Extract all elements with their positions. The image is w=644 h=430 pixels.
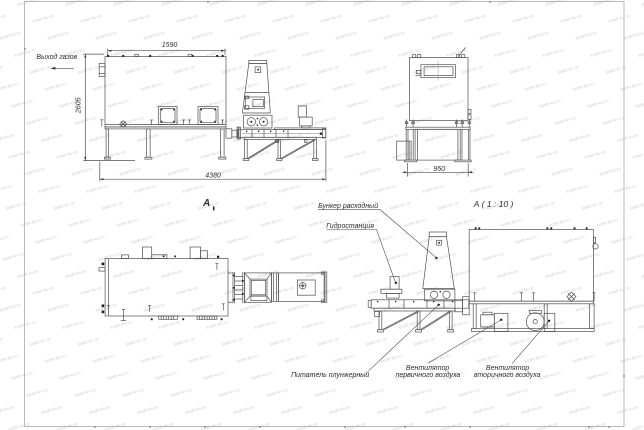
svg-text:kotel-kv.ru: kotel-kv.ru (233, 404, 256, 416)
svg-text:kotel-kv.ru: kotel-kv.ru (41, 404, 64, 416)
svg-text:kotel-kv.ru: kotel-kv.ru (245, 200, 268, 212)
svg-text:kotel-kv.ru: kotel-kv.ru (518, 183, 541, 195)
svg-text:kotel-kv.ru: kotel-kv.ru (146, 251, 169, 263)
svg-text:kotel-kv.ru: kotel-kv.ru (179, 234, 202, 246)
svg-text:kotel-kv.ru: kotel-kv.ru (569, 132, 592, 144)
svg-text:kotel-kv.ru: kotel-kv.ru (632, 149, 644, 161)
svg-text:kotel-kv.ru: kotel-kv.ru (335, 302, 358, 314)
svg-text:kotel-kv.ru: kotel-kv.ru (188, 353, 211, 365)
svg-text:kotel-kv.ru: kotel-kv.ru (470, 183, 493, 195)
svg-text:kotel-kv.ru: kotel-kv.ru (77, 64, 100, 76)
svg-text:kotel-kv.ru: kotel-kv.ru (476, 81, 499, 93)
svg-text:kotel-kv.ru: kotel-kv.ru (545, 268, 568, 280)
svg-text:kotel-kv.ru: kotel-kv.ru (413, 336, 436, 348)
svg-text:kotel-kv.ru: kotel-kv.ru (107, 370, 130, 382)
svg-text:kotel-kv.ru: kotel-kv.ru (158, 319, 181, 331)
svg-text:kotel-kv.ru: kotel-kv.ru (0, 285, 7, 297)
svg-text:kotel-kv.ru: kotel-kv.ru (536, 149, 559, 161)
svg-text:kotel-kv.ru: kotel-kv.ru (344, 149, 367, 161)
svg-text:1590: 1590 (162, 42, 178, 49)
svg-text:kotel-kv.ru: kotel-kv.ru (611, 234, 634, 246)
svg-text:kotel-kv.ru: kotel-kv.ru (473, 132, 496, 144)
svg-text:kotel-kv.ru: kotel-kv.ru (608, 13, 631, 25)
svg-text:kotel-kv.ru: kotel-kv.ru (116, 217, 139, 229)
svg-text:kotel-kv.ru: kotel-kv.ru (368, 13, 391, 25)
svg-text:kotel-kv.ru: kotel-kv.ru (422, 183, 445, 195)
svg-text:kotel-kv.ru: kotel-kv.ru (41, 132, 64, 144)
svg-text:kotel-kv.ru: kotel-kv.ru (218, 387, 241, 399)
svg-text:4380: 4380 (205, 172, 221, 179)
svg-text:kotel-kv.ru: kotel-kv.ru (638, 47, 644, 59)
svg-text:kotel-kv.ru: kotel-kv.ru (77, 336, 100, 348)
svg-text:kotel-kv.ru: kotel-kv.ru (560, 13, 583, 25)
svg-text:kotel-kv.ru: kotel-kv.ru (320, 13, 343, 25)
svg-text:kotel-kv.ru: kotel-kv.ru (332, 81, 355, 93)
svg-text:kotel-kv.ru: kotel-kv.ru (425, 132, 448, 144)
svg-text:kotel-kv.ru: kotel-kv.ru (359, 166, 382, 178)
svg-text:kotel-kv.ru: kotel-kv.ru (92, 81, 115, 93)
svg-text:kotel-kv.ru: kotel-kv.ru (362, 387, 385, 399)
svg-text:kotel-kv.ru: kotel-kv.ru (26, 387, 49, 399)
svg-text:kotel-kv.ru: kotel-kv.ru (149, 200, 172, 212)
svg-text:kotel-kv.ru: kotel-kv.ru (557, 336, 580, 348)
svg-text:kotel-kv.ru: kotel-kv.ru (11, 98, 34, 110)
svg-text:kotel-kv.ru: kotel-kv.ru (320, 285, 343, 297)
svg-text:kotel-kv.ru: kotel-kv.ru (584, 149, 607, 161)
svg-text:kotel-kv.ru: kotel-kv.ru (617, 404, 640, 416)
svg-text:kotel-kv.ru: kotel-kv.ru (290, 251, 313, 263)
svg-text:kotel-kv.ru: kotel-kv.ru (272, 13, 295, 25)
svg-text:kotel-kv.ru: kotel-kv.ru (167, 166, 190, 178)
svg-text:Питатель плунжерный: Питатель плунжерный (291, 371, 369, 379)
svg-text:kotel-kv.ru: kotel-kv.ru (173, 336, 196, 348)
svg-text:950: 950 (433, 166, 445, 173)
svg-text:kotel-kv.ru: kotel-kv.ru (191, 302, 214, 314)
svg-text:первичного воздуха: первичного воздуха (395, 371, 460, 379)
svg-text:kotel-kv.ru: kotel-kv.ru (542, 47, 565, 59)
svg-text:kotel-kv.ru: kotel-kv.ru (71, 166, 94, 178)
svg-text:kotel-kv.ru: kotel-kv.ru (152, 421, 175, 430)
svg-text:kotel-kv.ru: kotel-kv.ru (203, 370, 226, 382)
svg-text:kotel-kv.ru: kotel-kv.ru (587, 370, 610, 382)
svg-text:kotel-kv.ru: kotel-kv.ru (26, 115, 49, 127)
svg-text:kotel-kv.ru: kotel-kv.ru (401, 268, 424, 280)
svg-text:kotel-kv.ru: kotel-kv.ru (590, 319, 613, 331)
svg-text:kotel-kv.ru: kotel-kv.ru (140, 353, 163, 365)
svg-text:kotel-kv.ru: kotel-kv.ru (266, 115, 289, 127)
svg-text:kotel-kv.ru: kotel-kv.ru (314, 115, 337, 127)
svg-text:kotel-kv.ru: kotel-kv.ru (254, 319, 277, 331)
svg-text:kotel-kv.ru: kotel-kv.ru (269, 336, 292, 348)
svg-text:kotel-kv.ru: kotel-kv.ru (284, 353, 307, 365)
svg-text:kotel-kv.ru: kotel-kv.ru (536, 421, 559, 430)
svg-text:kotel-kv.ru: kotel-kv.ru (317, 336, 340, 348)
svg-text:kotel-kv.ru: kotel-kv.ru (395, 98, 418, 110)
svg-text:kotel-kv.ru: kotel-kv.ru (596, 217, 619, 229)
svg-text:kotel-kv.ru: kotel-kv.ru (125, 64, 148, 76)
svg-text:kotel-kv.ru: kotel-kv.ru (608, 285, 631, 297)
svg-text:kotel-kv.ru: kotel-kv.ru (623, 30, 644, 42)
svg-text:kotel-kv.ru: kotel-kv.ru (572, 353, 595, 365)
svg-text:kotel-kv.ru: kotel-kv.ru (104, 421, 127, 430)
svg-text:kotel-kv.ru: kotel-kv.ru (284, 81, 307, 93)
svg-text:kotel-kv.ru: kotel-kv.ru (29, 336, 52, 348)
svg-text:kotel-kv.ru: kotel-kv.ru (164, 217, 187, 229)
svg-text:kotel-kv.ru: kotel-kv.ru (230, 183, 253, 195)
svg-text:kotel-kv.ru: kotel-kv.ru (221, 64, 244, 76)
svg-text:kotel-kv.ru: kotel-kv.ru (509, 64, 532, 76)
svg-text:kotel-kv.ru: kotel-kv.ru (452, 217, 475, 229)
svg-text:kotel-kv.ru: kotel-kv.ru (620, 81, 643, 93)
svg-text:kotel-kv.ru: kotel-kv.ru (101, 200, 124, 212)
svg-text:kotel-kv.ru: kotel-kv.ru (269, 64, 292, 76)
svg-text:kotel-kv.ru: kotel-kv.ru (161, 268, 184, 280)
svg-text:kotel-kv.ru: kotel-kv.ru (185, 132, 208, 144)
svg-text:kotel-kv.ru: kotel-kv.ru (590, 47, 613, 59)
svg-text:kotel-kv.ru: kotel-kv.ru (431, 30, 454, 42)
svg-text:kotel-kv.ru: kotel-kv.ru (371, 234, 394, 246)
svg-text:2605: 2605 (76, 97, 83, 114)
svg-text:kotel-kv.ru: kotel-kv.ru (143, 30, 166, 42)
svg-text:kotel-kv.ru: kotel-kv.ru (494, 47, 517, 59)
svg-text:kotel-kv.ru: kotel-kv.ru (170, 387, 193, 399)
svg-text:kotel-kv.ru: kotel-kv.ru (0, 64, 4, 76)
svg-text:kotel-kv.ru: kotel-kv.ru (515, 234, 538, 246)
svg-text:kotel-kv.ru: kotel-kv.ru (410, 387, 433, 399)
svg-text:kotel-kv.ru: kotel-kv.ru (635, 370, 644, 382)
svg-text:А ( 1 : 10 ): А ( 1 : 10 ) (473, 199, 514, 209)
svg-text:kotel-kv.ru: kotel-kv.ru (191, 30, 214, 42)
svg-text:kotel-kv.ru: kotel-kv.ru (98, 251, 121, 263)
svg-text:kotel-kv.ru: kotel-kv.ru (497, 268, 520, 280)
svg-text:Гидростанция: Гидростанция (326, 222, 374, 230)
svg-text:kotel-kv.ru: kotel-kv.ru (0, 302, 22, 314)
svg-text:kotel-kv.ru: kotel-kv.ru (92, 353, 115, 365)
svg-text:kotel-kv.ru: kotel-kv.ru (494, 319, 517, 331)
svg-text:kotel-kv.ru: kotel-kv.ru (53, 200, 76, 212)
svg-text:kotel-kv.ru: kotel-kv.ru (299, 98, 322, 110)
svg-text:kotel-kv.ru: kotel-kv.ru (488, 421, 511, 430)
svg-text:kotel-kv.ru: kotel-kv.ru (548, 217, 571, 229)
svg-text:kotel-kv.ru: kotel-kv.ru (440, 421, 463, 430)
svg-text:kotel-kv.ru: kotel-kv.ru (32, 285, 55, 297)
svg-text:kotel-kv.ru: kotel-kv.ru (365, 336, 388, 348)
svg-text:kotel-kv.ru: kotel-kv.ru (476, 353, 499, 365)
svg-text:kotel-kv.ru: kotel-kv.ru (206, 47, 229, 59)
svg-text:kotel-kv.ru: kotel-kv.ru (0, 404, 16, 416)
svg-text:kotel-kv.ru: kotel-kv.ru (110, 47, 133, 59)
svg-text:kotel-kv.ru: kotel-kv.ru (614, 183, 637, 195)
svg-text:kotel-kv.ru: kotel-kv.ru (404, 217, 427, 229)
svg-text:kotel-kv.ru: kotel-kv.ru (8, 149, 31, 161)
svg-text:kotel-kv.ru: kotel-kv.ru (365, 64, 388, 76)
svg-text:kotel-kv.ru: kotel-kv.ru (317, 64, 340, 76)
svg-text:kotel-kv.ru: kotel-kv.ru (632, 421, 644, 430)
svg-text:kotel-kv.ru: kotel-kv.ru (236, 81, 259, 93)
svg-text:kotel-kv.ru: kotel-kv.ru (425, 404, 448, 416)
svg-text:kotel-kv.ru: kotel-kv.ru (620, 353, 643, 365)
svg-text:kotel-kv.ru: kotel-kv.ru (188, 81, 211, 93)
svg-text:Выход газов: Выход газов (36, 53, 77, 61)
svg-text:kotel-kv.ru: kotel-kv.ru (0, 13, 7, 25)
svg-text:kotel-kv.ru: kotel-kv.ru (392, 421, 415, 430)
svg-text:kotel-kv.ru: kotel-kv.ru (527, 30, 550, 42)
svg-text:kotel-kv.ru: kotel-kv.ru (86, 183, 109, 195)
svg-text:kotel-kv.ru: kotel-kv.ru (143, 302, 166, 314)
svg-text:kotel-kv.ru: kotel-kv.ru (563, 234, 586, 246)
svg-text:kotel-kv.ru: kotel-kv.ru (176, 285, 199, 297)
svg-text:kotel-kv.ru: kotel-kv.ru (386, 251, 409, 263)
svg-text:kotel-kv.ru: kotel-kv.ru (254, 47, 277, 59)
svg-text:kotel-kv.ru: kotel-kv.ru (533, 200, 556, 212)
svg-text:kotel-kv.ru: kotel-kv.ru (62, 319, 85, 331)
svg-text:kotel-kv.ru: kotel-kv.ru (251, 370, 274, 382)
svg-text:kotel-kv.ru: kotel-kv.ru (296, 421, 319, 430)
svg-text:kotel-kv.ru: kotel-kv.ru (368, 285, 391, 297)
svg-text:kotel-kv.ru: kotel-kv.ru (236, 353, 259, 365)
svg-text:kotel-kv.ru: kotel-kv.ru (560, 285, 583, 297)
svg-text:А: А (202, 198, 210, 209)
svg-text:kotel-kv.ru: kotel-kv.ru (155, 370, 178, 382)
svg-text:kotel-kv.ru: kotel-kv.ru (0, 336, 4, 348)
svg-text:kotel-kv.ru: kotel-kv.ru (539, 370, 562, 382)
svg-text:kotel-kv.ru: kotel-kv.ru (0, 115, 1, 127)
svg-text:kotel-kv.ru: kotel-kv.ru (575, 30, 598, 42)
svg-text:kotel-kv.ru: kotel-kv.ru (512, 285, 535, 297)
svg-text:kotel-kv.ru: kotel-kv.ru (221, 336, 244, 348)
svg-text:kotel-kv.ru: kotel-kv.ru (239, 30, 262, 42)
svg-text:kotel-kv.ru: kotel-kv.ru (350, 47, 373, 59)
svg-text:kotel-kv.ru: kotel-kv.ru (227, 234, 250, 246)
svg-text:kotel-kv.ru: kotel-kv.ru (134, 183, 157, 195)
svg-text:kotel-kv.ru: kotel-kv.ru (311, 166, 334, 178)
svg-text:kotel-kv.ru: kotel-kv.ru (473, 404, 496, 416)
svg-text:kotel-kv.ru: kotel-kv.ru (281, 132, 304, 144)
svg-text:kotel-kv.ru: kotel-kv.ru (83, 234, 106, 246)
svg-text:kotel-kv.ru: kotel-kv.ru (581, 200, 604, 212)
svg-text:kotel-kv.ru: kotel-kv.ru (569, 404, 592, 416)
svg-text:kotel-kv.ru: kotel-kv.ru (209, 268, 232, 280)
svg-text:kotel-kv.ru: kotel-kv.ru (242, 251, 265, 263)
svg-text:kotel-kv.ru: kotel-kv.ru (74, 387, 97, 399)
svg-text:kotel-kv.ru: kotel-kv.ru (206, 319, 229, 331)
svg-text:kotel-kv.ru: kotel-kv.ru (506, 115, 529, 127)
svg-text:kotel-kv.ru: kotel-kv.ru (572, 81, 595, 93)
svg-text:kotel-kv.ru: kotel-kv.ru (29, 64, 52, 76)
svg-text:kotel-kv.ru: kotel-kv.ru (89, 404, 112, 416)
svg-text:kotel-kv.ru: kotel-kv.ru (0, 387, 1, 399)
svg-text:kotel-kv.ru: kotel-kv.ru (212, 217, 235, 229)
svg-text:kotel-kv.ru: kotel-kv.ru (128, 285, 151, 297)
svg-text:Бункер расходный: Бункер расходный (318, 202, 378, 210)
svg-text:kotel-kv.ru: kotel-kv.ru (35, 234, 58, 246)
svg-text:kotel-kv.ru: kotel-kv.ru (272, 285, 295, 297)
svg-text:kotel-kv.ru: kotel-kv.ru (122, 387, 145, 399)
svg-text:kotel-kv.ru: kotel-kv.ru (530, 251, 553, 263)
svg-text:kotel-kv.ru: kotel-kv.ru (602, 115, 625, 127)
svg-text:Вентилятор: Вентилятор (486, 365, 529, 372)
svg-text:kotel-kv.ru: kotel-kv.ru (626, 251, 644, 263)
svg-text:kotel-kv.ru: kotel-kv.ru (362, 115, 385, 127)
svg-text:kotel-kv.ru: kotel-kv.ru (338, 251, 361, 263)
svg-text:kotel-kv.ru: kotel-kv.ru (128, 13, 151, 25)
svg-text:kotel-kv.ru: kotel-kv.ru (506, 387, 529, 399)
svg-text:kotel-kv.ru: kotel-kv.ru (47, 30, 70, 42)
svg-text:kotel-kv.ru: kotel-kv.ru (218, 115, 241, 127)
svg-text:kotel-kv.ru: kotel-kv.ru (566, 183, 589, 195)
svg-text:kotel-kv.ru: kotel-kv.ru (260, 217, 283, 229)
svg-text:kotel-kv.ru: kotel-kv.ru (599, 166, 622, 178)
svg-text:kotel-kv.ru: kotel-kv.ru (464, 285, 487, 297)
svg-text:kotel-kv.ru: kotel-kv.ru (629, 200, 644, 212)
svg-text:kotel-kv.ru: kotel-kv.ru (440, 149, 463, 161)
svg-text:kotel-kv.ru: kotel-kv.ru (95, 302, 118, 314)
svg-text:kotel-kv.ru: kotel-kv.ru (434, 251, 457, 263)
svg-text:kotel-kv.ru: kotel-kv.ru (461, 64, 484, 76)
svg-text:kotel-kv.ru: kotel-kv.ru (17, 268, 40, 280)
svg-text:kotel-kv.ru: kotel-kv.ru (554, 115, 577, 127)
svg-text:kotel-kv.ru: kotel-kv.ru (503, 166, 526, 178)
svg-text:kotel-kv.ru: kotel-kv.ru (314, 387, 337, 399)
svg-text:kotel-kv.ru: kotel-kv.ru (80, 285, 103, 297)
svg-text:kotel-kv.ru: kotel-kv.ru (329, 404, 352, 416)
svg-text:kotel-kv.ru: kotel-kv.ru (125, 336, 148, 348)
svg-text:kotel-kv.ru: kotel-kv.ru (0, 353, 19, 365)
svg-text:kotel-kv.ru: kotel-kv.ru (185, 404, 208, 416)
svg-text:kotel-kv.ru: kotel-kv.ru (200, 421, 223, 430)
svg-text:kotel-kv.ru: kotel-kv.ru (638, 319, 644, 331)
svg-text:kotel-kv.ru: kotel-kv.ru (380, 81, 403, 93)
svg-text:kotel-kv.ru: kotel-kv.ru (137, 132, 160, 144)
svg-text:kotel-kv.ru: kotel-kv.ru (140, 81, 163, 93)
svg-text:kotel-kv.ru: kotel-kv.ru (2, 251, 25, 263)
svg-text:kotel-kv.ru: kotel-kv.ru (32, 13, 55, 25)
svg-text:kotel-kv.ru: kotel-kv.ru (323, 234, 346, 246)
svg-text:kotel-kv.ru: kotel-kv.ru (47, 302, 70, 314)
svg-text:kotel-kv.ru: kotel-kv.ru (344, 421, 367, 430)
svg-text:kotel-kv.ru: kotel-kv.ru (20, 217, 43, 229)
svg-text:kotel-kv.ru: kotel-kv.ru (488, 149, 511, 161)
svg-text:kotel-kv.ru: kotel-kv.ru (446, 47, 469, 59)
svg-text:kotel-kv.ru: kotel-kv.ru (68, 217, 91, 229)
svg-text:kotel-kv.ru: kotel-kv.ru (224, 13, 247, 25)
svg-text:kotel-kv.ru: kotel-kv.ru (44, 353, 67, 365)
svg-text:kotel-kv.ru: kotel-kv.ru (266, 387, 289, 399)
svg-text:kotel-kv.ru: kotel-kv.ru (275, 234, 298, 246)
svg-text:kotel-kv.ru: kotel-kv.ru (119, 166, 142, 178)
svg-text:kotel-kv.ru: kotel-kv.ru (578, 251, 601, 263)
svg-text:kotel-kv.ru: kotel-kv.ru (176, 13, 199, 25)
svg-text:kotel-kv.ru: kotel-kv.ru (512, 13, 535, 25)
svg-text:kotel-kv.ru: kotel-kv.ru (326, 183, 349, 195)
svg-text:kotel-kv.ru: kotel-kv.ru (50, 251, 73, 263)
svg-text:kotel-kv.ru: kotel-kv.ru (44, 81, 67, 93)
svg-text:kotel-kv.ru: kotel-kv.ru (521, 132, 544, 144)
svg-text:kotel-kv.ru: kotel-kv.ru (524, 353, 547, 365)
svg-text:kotel-kv.ru: kotel-kv.ru (554, 387, 577, 399)
svg-text:kotel-kv.ru: kotel-kv.ru (59, 370, 82, 382)
svg-text:kotel-kv.ru: kotel-kv.ru (602, 387, 625, 399)
svg-text:kotel-kv.ru: kotel-kv.ru (293, 200, 316, 212)
svg-text:kotel-kv.ru: kotel-kv.ru (416, 13, 439, 25)
svg-text:kotel-kv.ru: kotel-kv.ru (287, 302, 310, 314)
svg-text:kotel-kv.ru: kotel-kv.ru (239, 302, 262, 314)
svg-text:kotel-kv.ru: kotel-kv.ru (500, 217, 523, 229)
svg-text:kotel-kv.ru: kotel-kv.ru (224, 285, 247, 297)
svg-text:вторичного воздуха: вторичного воздуха (474, 371, 541, 379)
svg-text:Вентилятор: Вентилятор (406, 365, 449, 372)
svg-text:kotel-kv.ru: kotel-kv.ru (458, 387, 481, 399)
svg-text:kotel-kv.ru: kotel-kv.ru (8, 421, 31, 430)
svg-text:kotel-kv.ru: kotel-kv.ru (0, 132, 16, 144)
svg-text:kotel-kv.ru: kotel-kv.ru (428, 81, 451, 93)
svg-text:kotel-kv.ru: kotel-kv.ru (278, 183, 301, 195)
svg-text:kotel-kv.ru: kotel-kv.ru (617, 132, 640, 144)
svg-text:kotel-kv.ru: kotel-kv.ru (194, 251, 217, 263)
svg-text:kotel-kv.ru: kotel-kv.ru (587, 98, 610, 110)
svg-text:kotel-kv.ru: kotel-kv.ru (524, 81, 547, 93)
svg-text:kotel-kv.ru: kotel-kv.ru (56, 421, 79, 430)
svg-text:kotel-kv.ru: kotel-kv.ru (14, 319, 37, 331)
svg-text:kotel-kv.ru: kotel-kv.ru (521, 404, 544, 416)
svg-text:kotel-kv.ru: kotel-kv.ru (428, 353, 451, 365)
svg-text:kotel-kv.ru: kotel-kv.ru (377, 404, 400, 416)
svg-text:kotel-kv.ru: kotel-kv.ru (131, 234, 154, 246)
svg-text:kotel-kv.ru: kotel-kv.ru (350, 319, 373, 331)
svg-text:kotel-kv.ru: kotel-kv.ru (557, 64, 580, 76)
svg-text:kotel-kv.ru: kotel-kv.ru (38, 183, 61, 195)
svg-text:kotel-kv.ru: kotel-kv.ru (467, 234, 490, 246)
svg-text:kotel-kv.ru: kotel-kv.ru (296, 149, 319, 161)
svg-text:kotel-kv.ru: kotel-kv.ru (302, 319, 325, 331)
svg-text:kotel-kv.ru: kotel-kv.ru (491, 98, 514, 110)
svg-text:kotel-kv.ru: kotel-kv.ru (0, 30, 22, 42)
svg-text:kotel-kv.ru: kotel-kv.ru (584, 421, 607, 430)
svg-text:kotel-kv.ru: kotel-kv.ru (137, 404, 160, 416)
svg-text:kotel-kv.ru: kotel-kv.ru (389, 200, 412, 212)
svg-text:kotel-kv.ru: kotel-kv.ru (56, 149, 79, 161)
svg-text:kotel-kv.ru: kotel-kv.ru (332, 353, 355, 365)
svg-text:kotel-kv.ru: kotel-kv.ru (623, 302, 644, 314)
svg-text:kotel-kv.ru: kotel-kv.ru (593, 268, 616, 280)
svg-text:kotel-kv.ru: kotel-kv.ru (263, 166, 286, 178)
svg-text:kotel-kv.ru: kotel-kv.ru (335, 30, 358, 42)
svg-text:kotel-kv.ru: kotel-kv.ru (0, 183, 13, 195)
svg-text:kotel-kv.ru: kotel-kv.ru (287, 30, 310, 42)
svg-text:kotel-kv.ru: kotel-kv.ru (182, 183, 205, 195)
svg-text:kotel-kv.ru: kotel-kv.ru (479, 30, 502, 42)
svg-text:kotel-kv.ru: kotel-kv.ru (347, 98, 370, 110)
svg-text:kotel-kv.ru: kotel-kv.ru (80, 13, 103, 25)
svg-text:kotel-kv.ru: kotel-kv.ru (635, 98, 644, 110)
svg-text:kotel-kv.ru: kotel-kv.ru (107, 98, 130, 110)
svg-text:kotel-kv.ru: kotel-kv.ru (248, 421, 271, 430)
svg-text:kotel-kv.ru: kotel-kv.ru (353, 268, 376, 280)
svg-text:kotel-kv.ru: kotel-kv.ru (380, 353, 403, 365)
svg-text:kotel-kv.ru: kotel-kv.ru (329, 132, 352, 144)
svg-text:kotel-kv.ru: kotel-kv.ru (65, 268, 88, 280)
svg-text:kotel-kv.ru: kotel-kv.ru (0, 234, 10, 246)
svg-text:kotel-kv.ru: kotel-kv.ru (23, 166, 46, 178)
svg-text:kotel-kv.ru: kotel-kv.ru (11, 370, 34, 382)
svg-text:kotel-kv.ru: kotel-kv.ru (95, 30, 118, 42)
svg-text:kotel-kv.ru: kotel-kv.ru (113, 268, 136, 280)
svg-text:kotel-kv.ru: kotel-kv.ru (443, 98, 466, 110)
svg-text:kotel-kv.ru: kotel-kv.ru (0, 81, 19, 93)
svg-text:kotel-kv.ru: kotel-kv.ru (437, 200, 460, 212)
svg-text:kotel-kv.ru: kotel-kv.ru (374, 183, 397, 195)
svg-text:kotel-kv.ru: kotel-kv.ru (539, 98, 562, 110)
